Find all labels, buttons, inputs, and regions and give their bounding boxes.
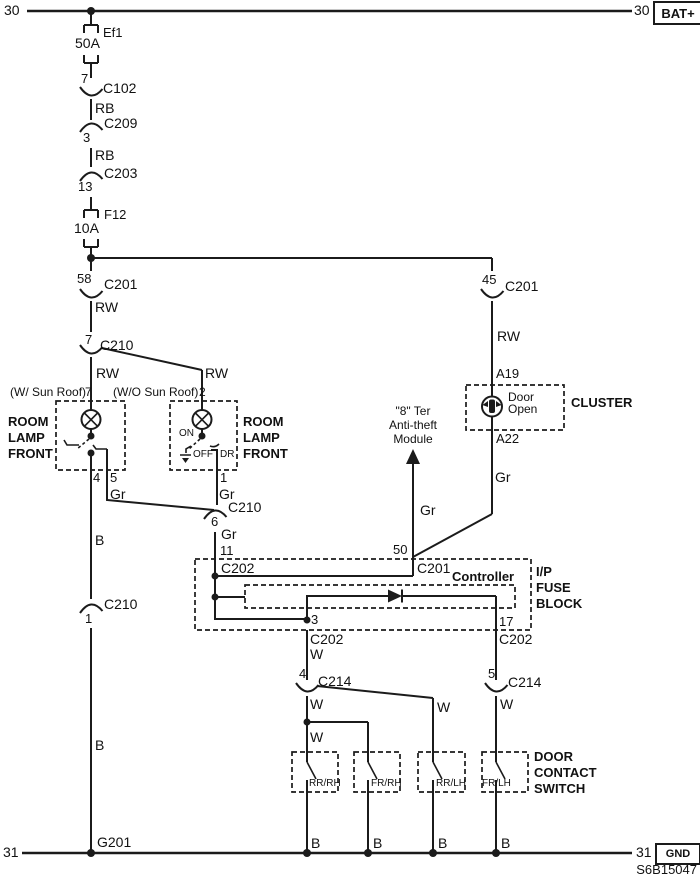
wiring-diagram: 30 30 BAT+ Ef1 50A 7 C102 RB C209 3 RB C…	[0, 0, 700, 879]
wire-b-sw2: B	[373, 836, 382, 851]
anti-theft-line-1: "8" Ter	[366, 405, 460, 418]
door-contact-name-1: DOOR	[534, 750, 573, 764]
switch-fr-rh: FR/RH	[371, 779, 402, 790]
rail-31-right: 31	[636, 845, 652, 860]
lamp-left-variant: (W/ Sun Roof)	[10, 386, 86, 399]
block-pin-11-conn: C202	[221, 561, 254, 576]
wire-rw-main: RW	[95, 300, 118, 315]
wire-w-pin3: W	[310, 647, 323, 662]
c214-4-id: C214	[318, 674, 351, 689]
door-contact-name-2: CONTACT	[534, 766, 597, 780]
fuse-ef1-rating: 50A	[75, 36, 100, 51]
c210-6-id: C210	[228, 500, 261, 515]
anti-theft-line-2: Anti-theft	[366, 419, 460, 432]
c214-4-pin: 4	[299, 667, 306, 681]
block-pin-3: 3	[311, 613, 318, 627]
block-name-3: BLOCK	[536, 597, 582, 611]
ground-symbol	[180, 446, 191, 463]
door-open-indicator-icon	[482, 397, 502, 417]
wire-gr-anti-theft: Gr	[420, 503, 436, 518]
connector-c102-symbol	[80, 87, 103, 96]
c210-1-pin: 1	[85, 612, 92, 626]
c201-45-pin: 45	[482, 273, 496, 287]
door-switch-wiring	[296, 683, 508, 853]
c210-7-pin: 7	[85, 333, 92, 347]
switch-blade	[189, 439, 200, 449]
switch-pos-on: ON	[179, 429, 194, 440]
lamp-right-name-2: LAMP	[243, 431, 280, 445]
ground-rail	[22, 849, 632, 857]
block-pin-17-conn: C202	[499, 632, 532, 647]
block-pin-11: 11	[220, 544, 234, 558]
switch-contact-left	[64, 440, 79, 445]
lamp-bulb-icon	[193, 410, 212, 429]
wire-b-lower: B	[95, 738, 104, 753]
wire-rb-1: RB	[95, 101, 114, 116]
wire-w-sw3: W	[437, 700, 450, 715]
rail-30-left: 30	[4, 3, 20, 18]
c210-7-id: C210	[100, 338, 133, 353]
switch-rr-rh: RR/RH	[309, 779, 341, 790]
block-pin-3-conn: C202	[310, 632, 343, 647]
block-name-2: FUSE	[536, 581, 571, 595]
block-pin-50: 50	[393, 543, 407, 557]
switch-pos-dr: DR	[220, 450, 234, 461]
wire-gr-cluster: Gr	[495, 470, 511, 485]
switch-blade	[307, 762, 316, 779]
lamp-right-pin-1: 1	[220, 471, 227, 485]
lamp-right-feed-pin: 2	[199, 386, 206, 399]
cluster-pin-a22: A22	[496, 432, 519, 446]
diagram-code: S6B15047	[600, 863, 697, 877]
c201-58-pin: 58	[77, 272, 91, 286]
diagram-artwork	[0, 0, 700, 879]
cluster-pin-a19: A19	[496, 367, 519, 381]
lamp-right-name-3: FRONT	[243, 447, 288, 461]
wire-w-sw2: W	[310, 730, 323, 745]
fuse-f12-rating: 10A	[74, 221, 99, 236]
switch-blade	[368, 762, 377, 779]
wire-b-sw4: B	[501, 836, 510, 851]
lamp-left-name-2: LAMP	[8, 431, 45, 445]
c203-pin: 13	[78, 180, 92, 194]
lamp-left-pin-5: 5	[110, 471, 117, 485]
controller-label: Controller	[452, 570, 514, 584]
c210-6-pin: 6	[211, 515, 218, 529]
c209-pin: 3	[83, 131, 90, 145]
anti-theft-arrow	[406, 449, 420, 576]
switch-rr-lh: RR/LH	[436, 779, 466, 790]
fuse-f12-id: F12	[104, 208, 126, 222]
cluster-to-block-diagonal	[413, 514, 492, 557]
wire-rw-cluster: RW	[497, 329, 520, 344]
c201-58-id: C201	[104, 277, 137, 292]
c209-id: C209	[104, 116, 137, 131]
connector-c214-4-symbol	[296, 683, 319, 692]
bat-plus-box: BAT+	[653, 1, 700, 25]
battery-feed-chain	[80, 11, 492, 262]
lamp-bulb-icon	[82, 410, 101, 429]
lamp-left-feed-pin: 7	[85, 386, 92, 399]
switch-blade	[496, 762, 505, 779]
rail-31-left: 31	[3, 845, 19, 860]
wire-w-sw1: W	[310, 697, 323, 712]
c102-id: C102	[103, 81, 136, 96]
wire-b-upper: B	[95, 533, 104, 548]
c210-1-id: C210	[104, 597, 137, 612]
bat-plus-label: BAT+	[661, 6, 694, 21]
lamp-ground-wire	[80, 604, 103, 853]
switch-contact-dr	[210, 444, 219, 447]
switch-pos-off: OFF	[193, 450, 213, 461]
c203-id: C203	[104, 166, 137, 181]
switch-fr-lh: FR/LH	[482, 779, 511, 790]
wire-rb-2: RB	[95, 148, 114, 163]
lamp-right-variant: (W/O Sun Roof)	[113, 386, 198, 399]
lamp-left-name-1: ROOM	[8, 415, 48, 429]
fuse-ef1-id: Ef1	[103, 26, 123, 40]
block-pin-50-conn: C201	[417, 561, 450, 576]
wire-w-sw4: W	[500, 697, 513, 712]
lamp-left-name-3: FRONT	[8, 447, 53, 461]
branch-diagonal	[317, 686, 433, 762]
connector-c201-45-symbol	[481, 289, 504, 298]
block-name-1: I/P	[536, 565, 552, 579]
c201-45-id: C201	[505, 279, 538, 294]
c102-pin: 7	[81, 72, 88, 86]
block-pin-17: 17	[499, 615, 513, 629]
wire-gr-pin5: Gr	[110, 487, 126, 502]
switch-contact-right	[93, 445, 107, 449]
ground-point-g201: G201	[97, 835, 131, 850]
cluster-name: CLUSTER	[571, 396, 632, 410]
c214-5-id: C214	[508, 675, 541, 690]
diode-icon	[388, 590, 402, 603]
c214-5-pin: 5	[488, 667, 495, 681]
door-contact-name-3: SWITCH	[534, 782, 585, 796]
wire-rw-lamp-right: RW	[205, 366, 228, 381]
connector-c214-5-symbol	[485, 683, 508, 692]
lamp-left-pin-4: 4	[93, 471, 100, 485]
gnd-label: GND	[666, 848, 690, 860]
connector-c201-58-symbol	[80, 289, 103, 298]
wire-b-sw3: B	[438, 836, 447, 851]
anti-theft-line-3: Module	[366, 433, 460, 446]
wire-rw-lamp-left: RW	[96, 366, 119, 381]
wire-gr-block: Gr	[221, 527, 237, 542]
switch-blade	[433, 762, 442, 779]
wire-b-sw1: B	[311, 836, 320, 851]
indicator-open: Open	[508, 403, 537, 416]
switch-blade	[77, 439, 89, 449]
rail-30-right: 30	[634, 3, 650, 18]
top-power-rail	[27, 7, 632, 15]
lamp-right-name-1: ROOM	[243, 415, 283, 429]
